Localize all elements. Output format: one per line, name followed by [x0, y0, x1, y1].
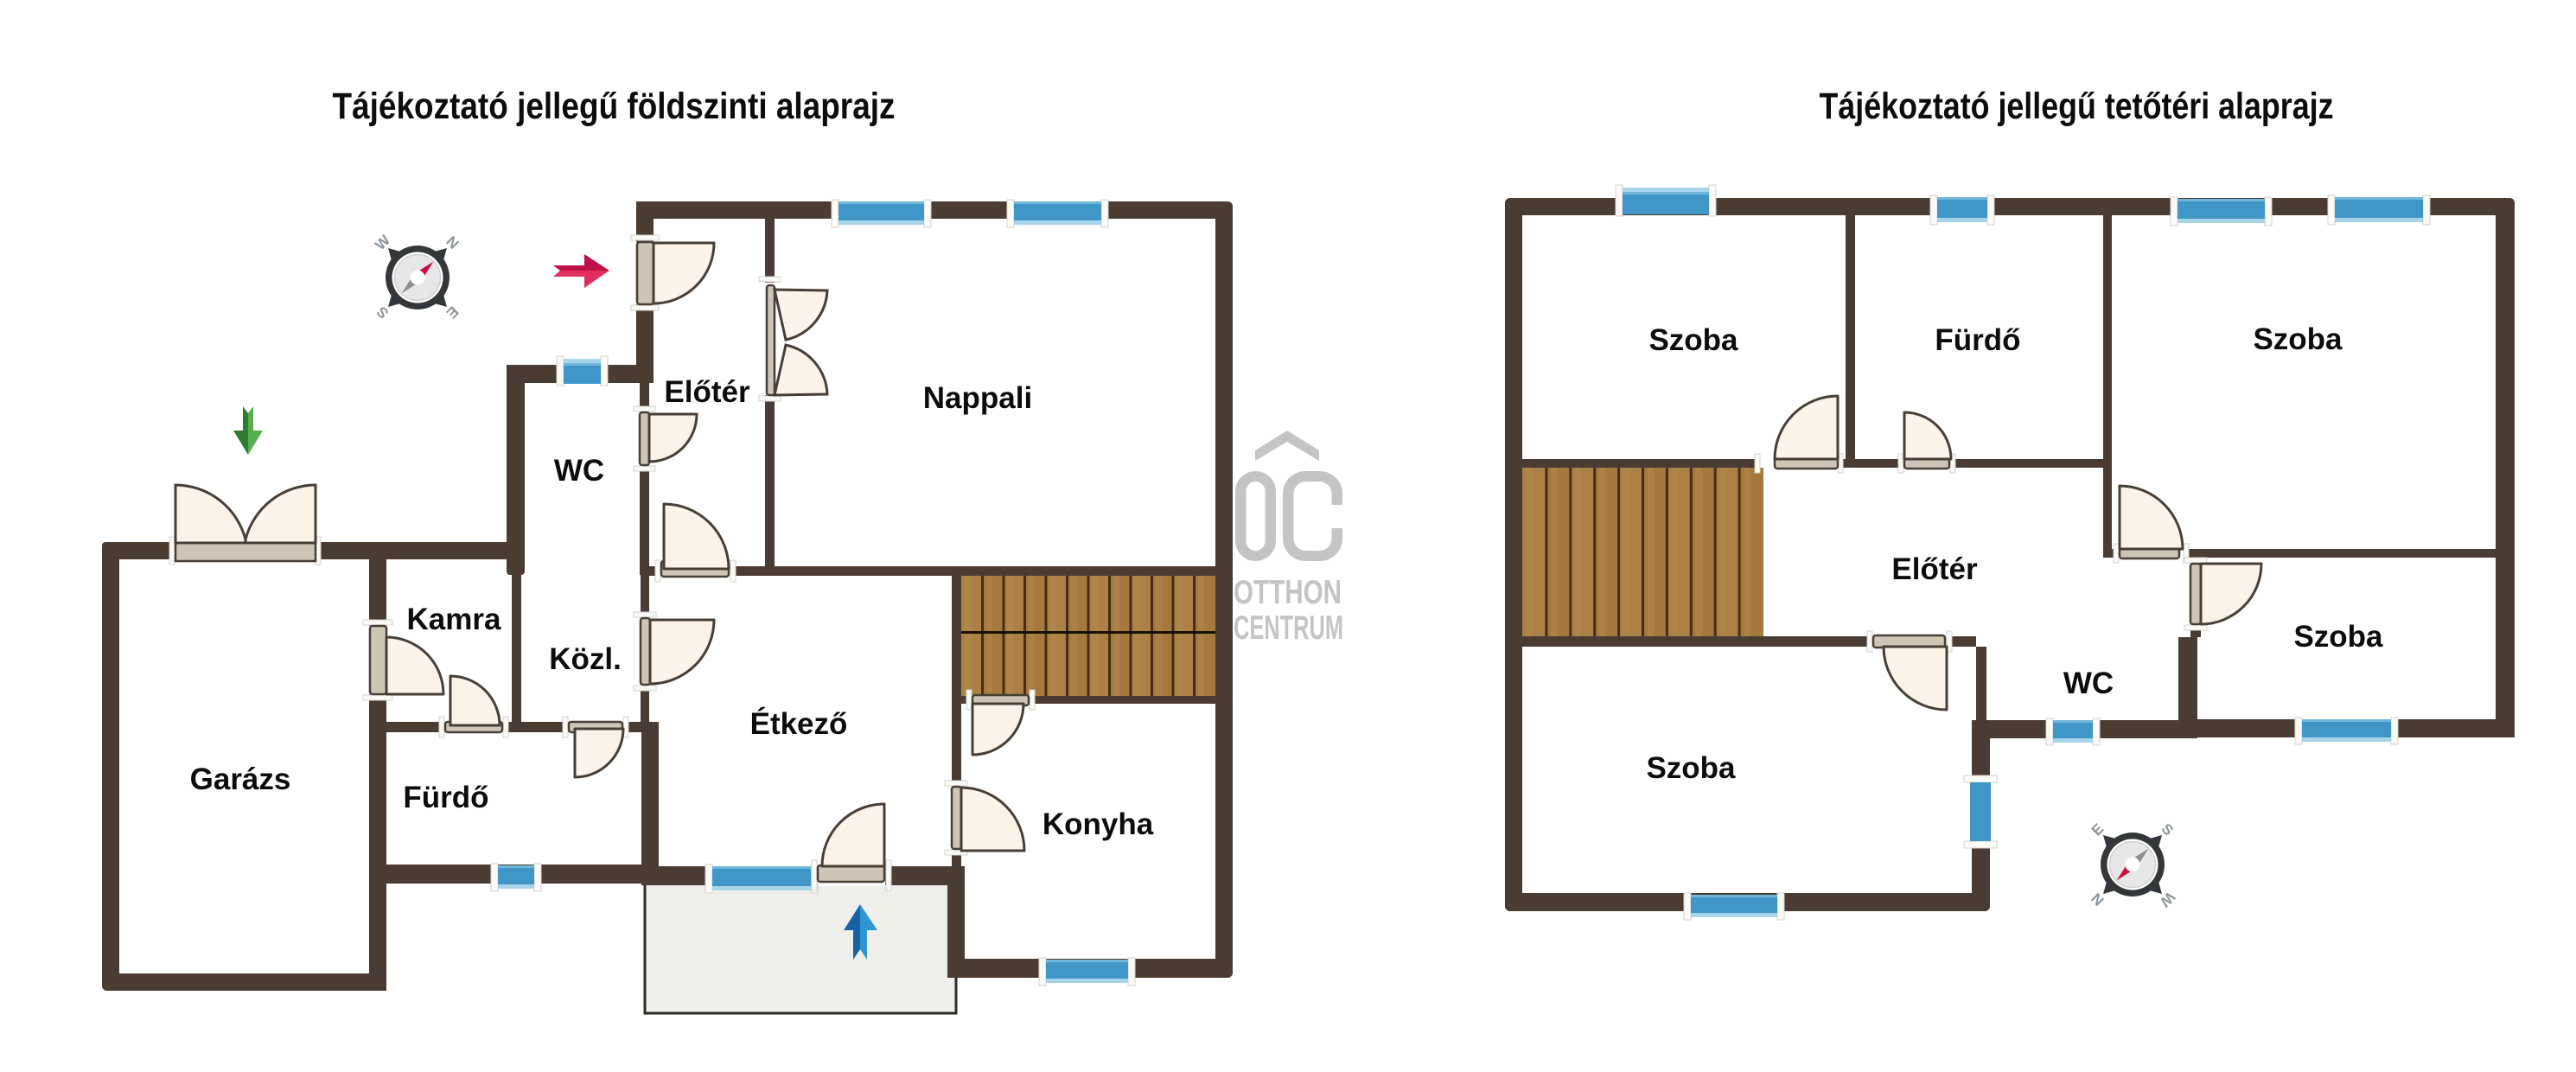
svg-text:Konyha: Konyha	[1043, 807, 1154, 841]
svg-text:Tájékoztató jellegű tetőtéri a: Tájékoztató jellegű tetőtéri alaprajz	[1820, 86, 2334, 127]
svg-text:Szoba: Szoba	[2293, 620, 2383, 654]
svg-text:Tájékoztató jellegű földszinti: Tájékoztató jellegű földszinti alaprajz	[333, 86, 896, 127]
svg-text:Szoba: Szoba	[2253, 322, 2343, 356]
svg-text:OTTHON: OTTHON	[1234, 574, 1342, 611]
svg-text:CENTRUM: CENTRUM	[1234, 609, 1343, 647]
svg-text:Szoba: Szoba	[1646, 751, 1736, 785]
svg-text:Nappali: Nappali	[923, 381, 1032, 415]
svg-text:Fürdő: Fürdő	[403, 781, 488, 814]
svg-text:WC: WC	[554, 454, 604, 488]
svg-text:Közl.: Közl.	[549, 642, 622, 676]
svg-text:Szoba: Szoba	[1648, 323, 1738, 357]
svg-text:Előtér: Előtér	[1891, 552, 1978, 586]
svg-text:Kamra: Kamra	[407, 603, 501, 636]
svg-text:Fürdő: Fürdő	[1935, 323, 2020, 357]
svg-text:Előtér: Előtér	[664, 375, 750, 409]
svg-text:WC: WC	[2063, 667, 2114, 700]
svg-text:Garázs: Garázs	[190, 763, 291, 796]
svg-text:Étkező: Étkező	[750, 706, 848, 741]
